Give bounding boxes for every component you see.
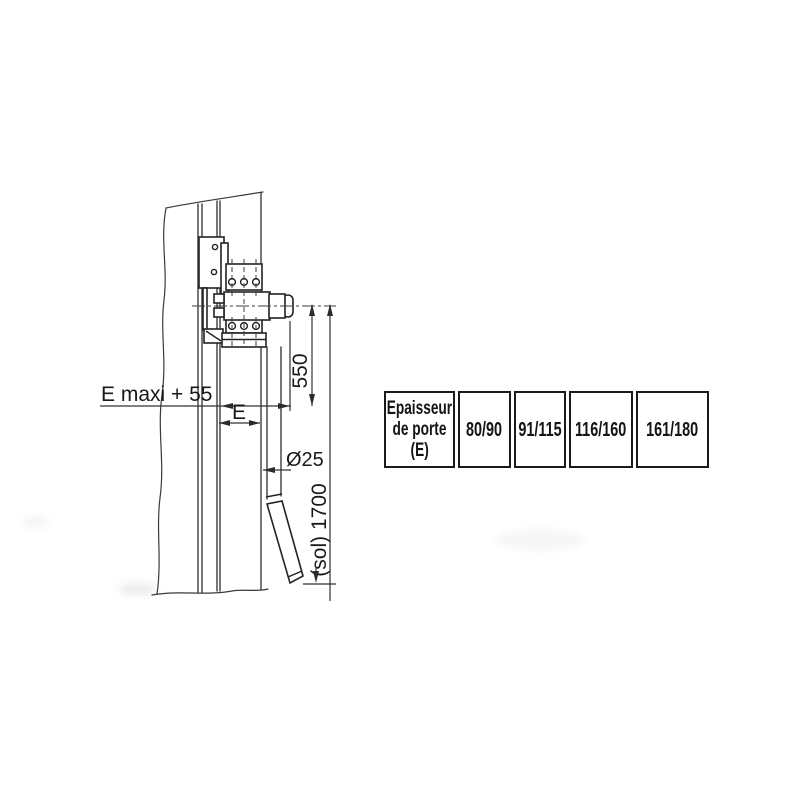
break-edge-top: [166, 192, 263, 208]
dim-e-maxi-label: E maxi + 55: [101, 383, 212, 406]
rod-angled-end: [267, 501, 303, 583]
door-thickness-table: Epaisseur de porte (E) 80/90 91/115 116/…: [384, 391, 709, 468]
dim-e-label: E: [232, 401, 246, 424]
table-value-cell: 80/90: [458, 391, 511, 468]
dim-sol-1700-label: (sol) 1700: [308, 483, 331, 576]
table-header-line3: (E): [410, 440, 428, 461]
lock-mechanism: [199, 237, 293, 348]
table-value-cell: 161/180: [636, 391, 709, 468]
dimension-diameter: Ø25: [263, 449, 324, 473]
dim-diameter-label: Ø25: [286, 449, 324, 471]
table-header-cell: Epaisseur de porte (E): [384, 391, 455, 468]
dimension-e: E: [219, 401, 260, 426]
dim-550-label: 550: [289, 353, 312, 388]
dimension-550: 550: [289, 304, 315, 406]
table-header-line2: de porte: [393, 419, 447, 440]
break-edge-bottom-wavy: [152, 589, 268, 595]
table-value-cell: 116/160: [569, 391, 633, 468]
table-value-cell: 91/115: [514, 391, 566, 468]
table-header-line1: Epaisseur: [387, 398, 452, 419]
background-smudges: [21, 517, 585, 595]
